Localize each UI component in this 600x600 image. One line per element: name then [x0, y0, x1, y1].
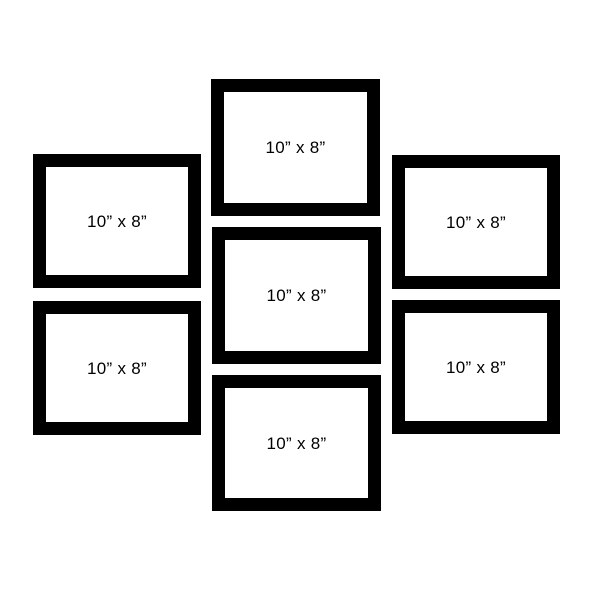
photo-frame-left-top: 10” x 8” — [33, 154, 201, 288]
gallery-wall-layout: 10” x 8” 10” x 8” 10” x 8” 10” x 8” 10” … — [0, 0, 600, 600]
frame-size-label: 10” x 8” — [266, 435, 326, 452]
frame-size-label: 10” x 8” — [265, 139, 325, 156]
photo-frame-right-top: 10” x 8” — [392, 155, 560, 289]
photo-frame-middle-center: 10” x 8” — [212, 227, 381, 364]
photo-frame-right-bottom: 10” x 8” — [392, 300, 560, 434]
frame-size-label: 10” x 8” — [87, 360, 147, 377]
photo-frame-middle-top: 10” x 8” — [211, 79, 380, 216]
frame-size-label: 10” x 8” — [446, 359, 506, 376]
photo-frame-middle-bottom: 10” x 8” — [212, 375, 381, 511]
frame-size-label: 10” x 8” — [87, 213, 147, 230]
frame-size-label: 10” x 8” — [446, 214, 506, 231]
frame-size-label: 10” x 8” — [266, 287, 326, 304]
photo-frame-left-bottom: 10” x 8” — [33, 301, 201, 435]
